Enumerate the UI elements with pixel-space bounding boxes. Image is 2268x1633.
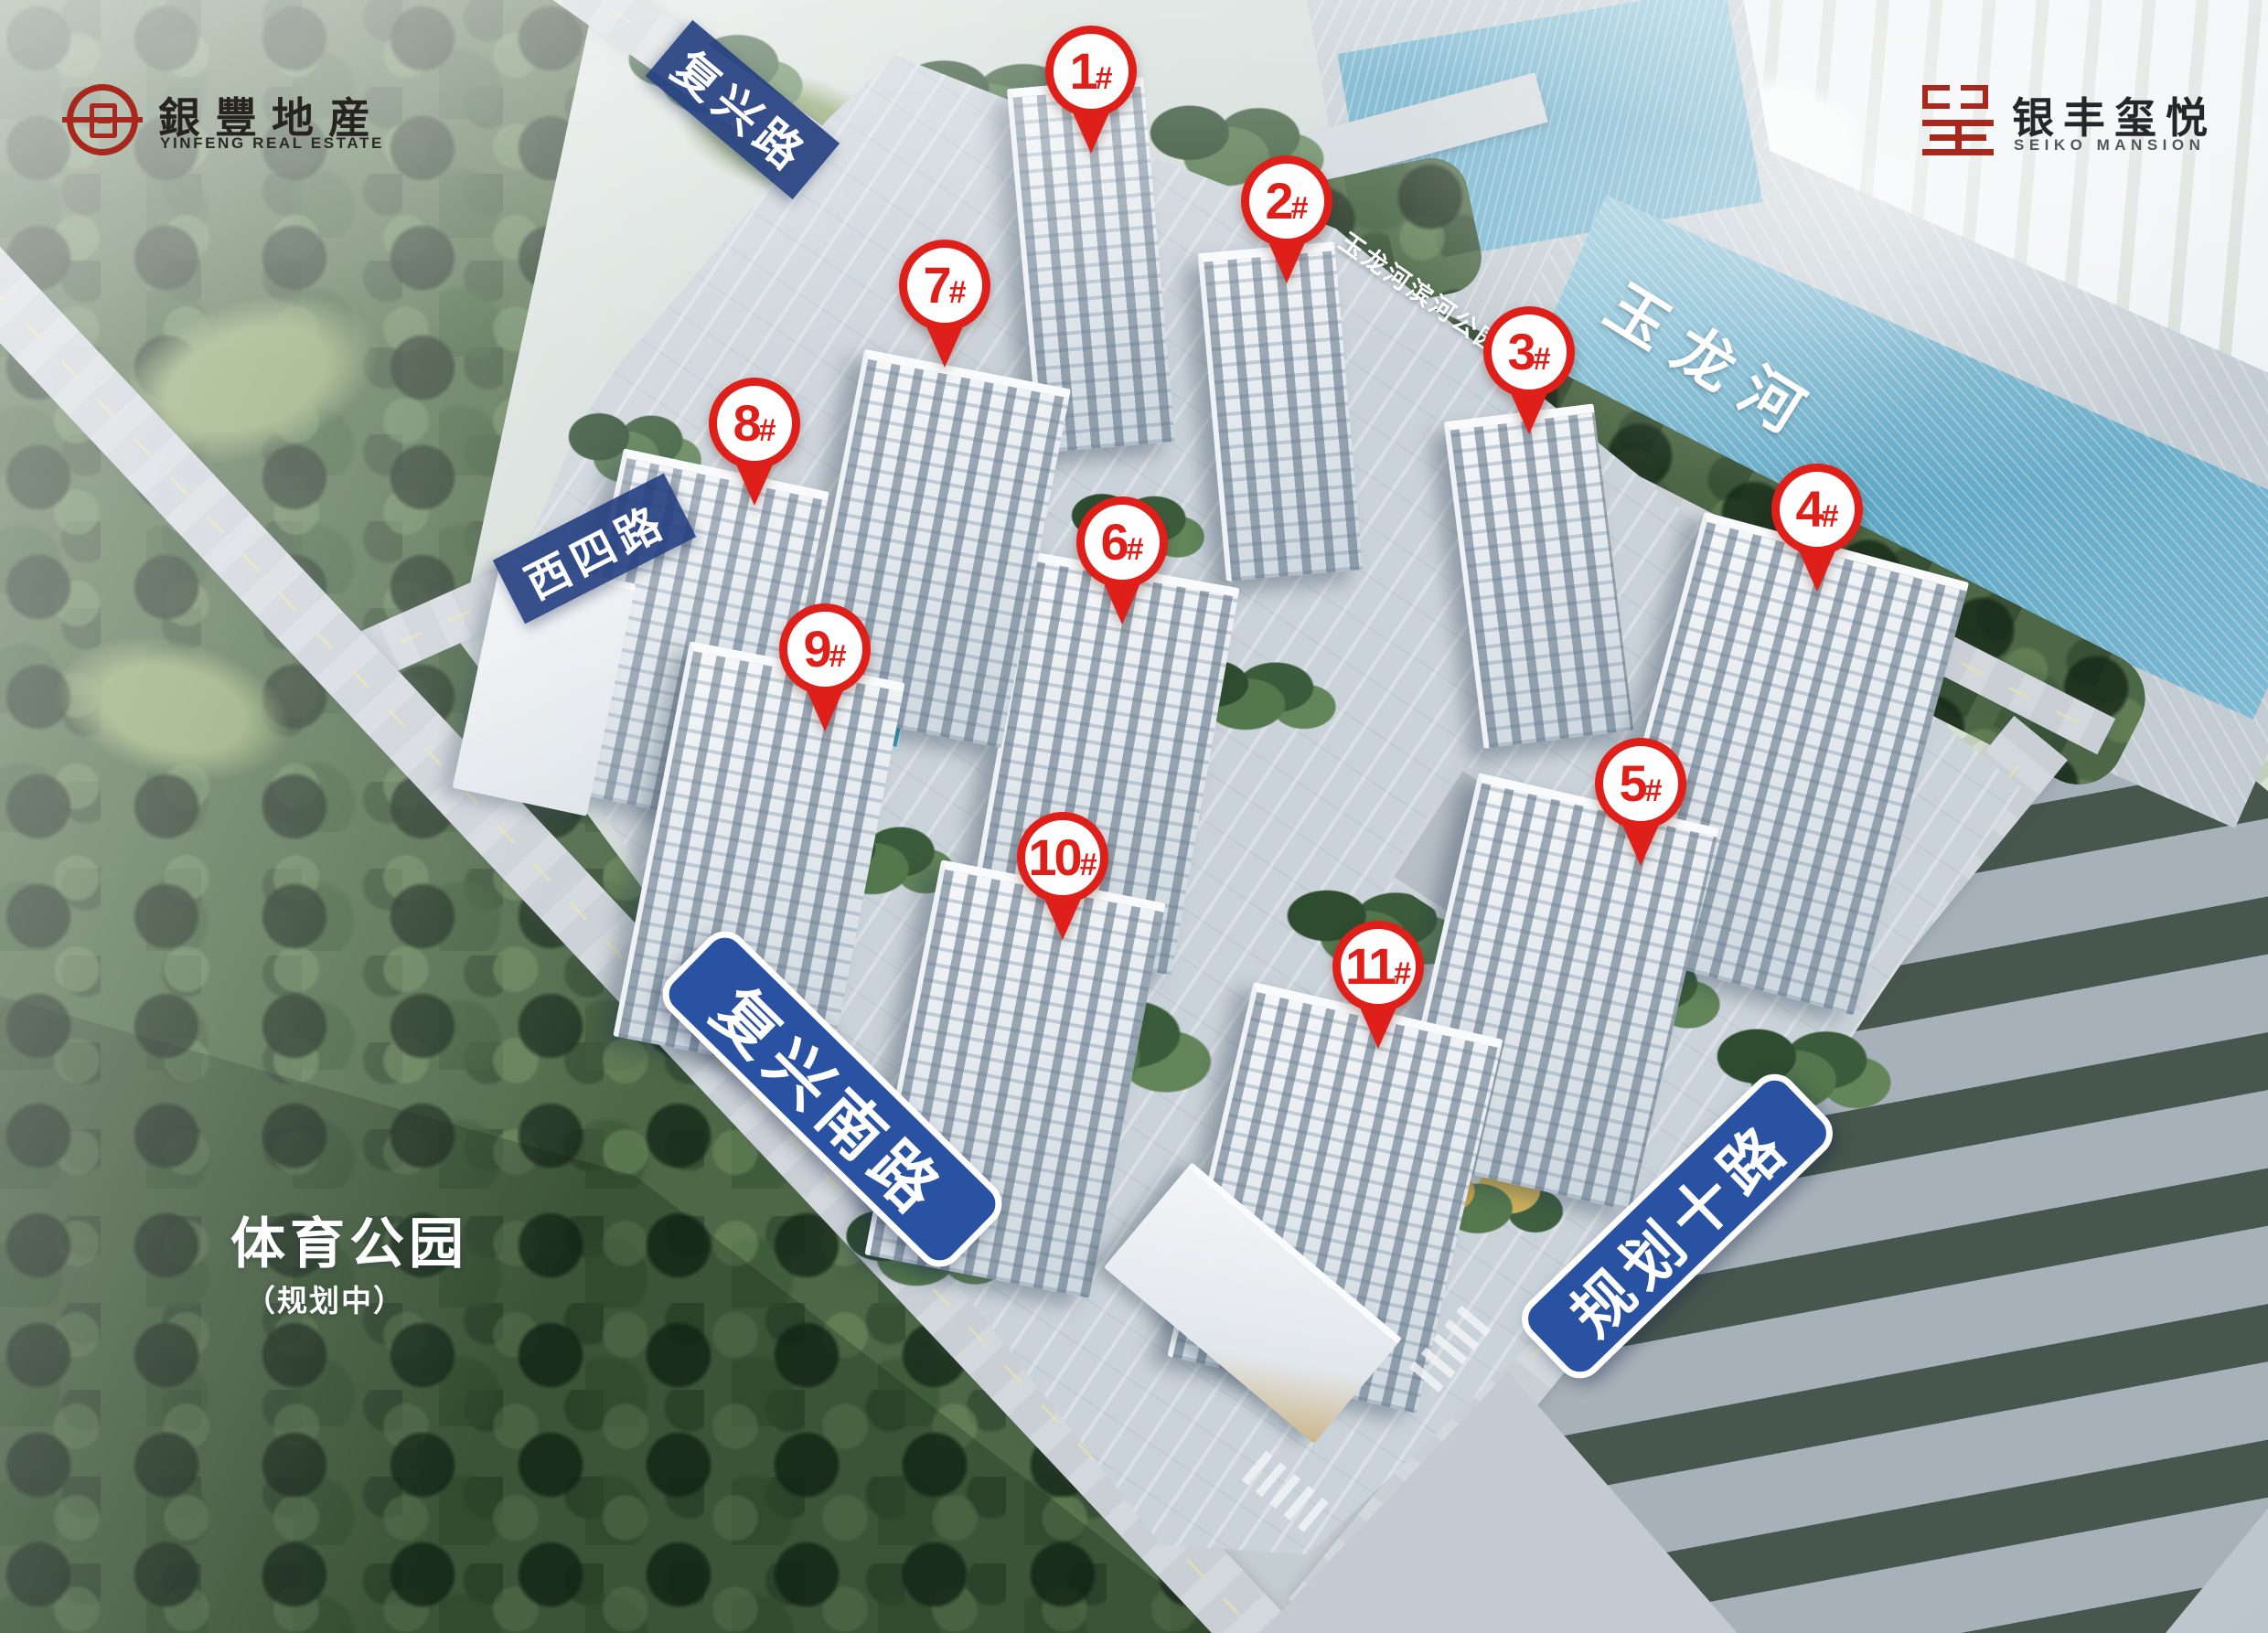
- pin-hash: #: [829, 641, 847, 672]
- pin-disc: 6#: [1076, 496, 1168, 588]
- pin-hash: #: [949, 277, 967, 308]
- pin-disc: 2#: [1241, 155, 1332, 247]
- pin-disc: 5#: [1595, 738, 1686, 829]
- pin-number: 11: [1345, 941, 1394, 992]
- pin-number: 7: [923, 260, 948, 311]
- seiko-mansion-logo-icon: [1922, 85, 1994, 156]
- seiko-mansion-logo: 银丰玺悦 SEIKO MANSION: [1916, 78, 2218, 169]
- pin-number: 5: [1619, 758, 1644, 809]
- building-pin-3: 3#: [1483, 306, 1575, 443]
- building-pin-2: 2#: [1241, 155, 1332, 293]
- seiko-mansion-name-en: SEIKO MANSION: [2014, 136, 2205, 155]
- pin-number: 2: [1265, 176, 1290, 227]
- yinfeng-name-en: YINFENG REAL ESTATE: [160, 134, 384, 153]
- pin-hash: #: [1096, 63, 1113, 94]
- pin-disc: 7#: [899, 240, 990, 331]
- building-pin-5: 5#: [1595, 738, 1686, 875]
- pin-hash: #: [1127, 534, 1144, 565]
- building-pin-7: 7#: [899, 240, 990, 377]
- building-pin-4: 4#: [1771, 464, 1863, 601]
- sports-park-label: 体育公园: [230, 1200, 468, 1279]
- pin-number: 4: [1795, 484, 1821, 535]
- pin-hash: #: [1645, 775, 1663, 806]
- pin-hash: #: [1291, 193, 1309, 224]
- pin-hash: #: [1394, 958, 1411, 989]
- pin-disc: 10#: [1017, 812, 1108, 903]
- pin-number: 6: [1100, 517, 1126, 568]
- building-pin-1: 1#: [1045, 26, 1137, 163]
- pin-hash: #: [1080, 849, 1097, 881]
- pin-number: 9: [803, 624, 829, 675]
- pin-hash: #: [1822, 501, 1839, 532]
- pin-disc: 4#: [1771, 464, 1863, 555]
- pin-disc: 8#: [709, 378, 800, 469]
- sports-park-status: （规划中）: [245, 1276, 405, 1320]
- building-pin-11: 11#: [1332, 921, 1424, 1058]
- yinfeng-logo: 銀豐地産 YINFENG REAL ESTATE: [64, 78, 430, 169]
- pin-disc: 9#: [779, 603, 871, 695]
- pin-disc: 11#: [1332, 921, 1424, 1012]
- building-pin-8: 8#: [709, 378, 800, 515]
- building-pin-10: 10#: [1017, 812, 1108, 949]
- building-pin-6: 6#: [1076, 496, 1168, 634]
- pin-hash: #: [1534, 344, 1551, 375]
- yinfeng-seal-icon: [67, 84, 138, 155]
- pin-number: 8: [733, 398, 758, 449]
- pin-number: 3: [1507, 326, 1533, 378]
- building-pin-9: 9#: [779, 603, 871, 741]
- masterplan-rendering: 复兴路 西四路 复兴南路 规划十路 玉龙河 玉龙河滨河公园 体育公园 （规划中）…: [0, 0, 2268, 1633]
- pin-number: 1: [1069, 46, 1095, 97]
- pin-disc: 3#: [1483, 306, 1575, 398]
- pin-hash: #: [759, 415, 776, 446]
- pin-number: 10: [1028, 832, 1079, 883]
- pin-disc: 1#: [1045, 26, 1137, 117]
